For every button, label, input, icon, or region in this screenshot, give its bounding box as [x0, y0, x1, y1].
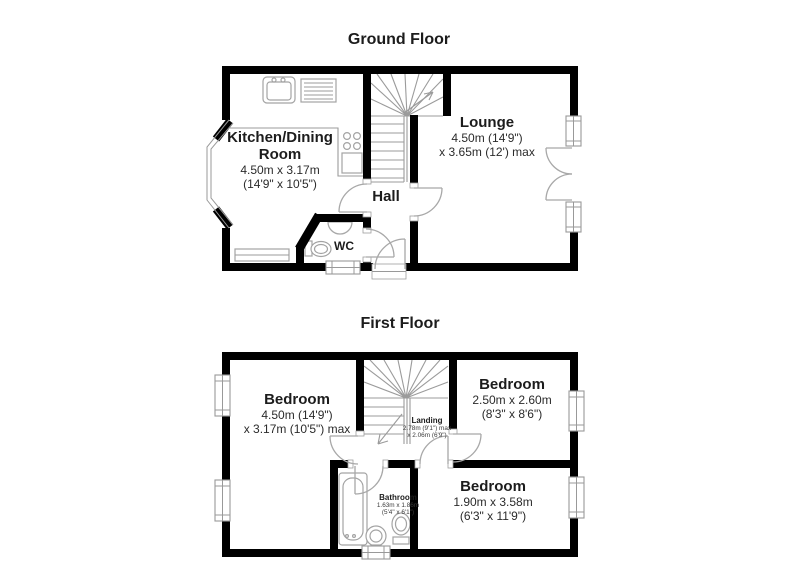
- room-label-bedroom-top-right: Bedroom 2.50m x 2.60m (8'3" x 8'6"): [472, 376, 551, 421]
- radiator-icon: [235, 249, 289, 261]
- bedroom-left-window-top: [215, 375, 230, 416]
- lounge-window-bottom: [566, 202, 581, 232]
- room-label-wc: WC: [334, 239, 354, 253]
- ground-floor-stairs: [371, 74, 443, 182]
- bedroom-top-right-door: [453, 434, 481, 462]
- bedroom-bottom-right-window: [569, 477, 584, 518]
- room-label-kitchen: Kitchen/Dining Room 4.50m x 3.17m (14'9"…: [213, 129, 347, 191]
- room-label-bedroom-bottom-right: Bedroom 1.90m x 3.58m (6'3" x 11'9"): [453, 478, 532, 523]
- lounge-window-top: [566, 116, 581, 146]
- bathroom-window: [362, 546, 390, 559]
- wc-toilet-icon: [305, 241, 331, 257]
- bedroom-top-right-window: [569, 391, 584, 431]
- wc-window: [326, 261, 360, 274]
- bathroom-toilet-icon: [392, 513, 410, 544]
- bedroom-bottom-right-door: [420, 436, 448, 464]
- room-label-hall: Hall: [372, 188, 400, 205]
- bedroom-left-window-bottom: [215, 480, 230, 521]
- first-floor-title: First Floor: [360, 315, 439, 333]
- stairs-down-arrow-icon: [378, 414, 402, 444]
- lounge-door: [414, 188, 442, 216]
- room-label-bathroom: Bathroom 1.63m x 1.86m (5'4" x 6'1"): [377, 493, 419, 516]
- room-label-lounge: Lounge 4.50m (14'9") x 3.65m (12') max: [439, 114, 535, 159]
- ground-floor-title: Ground Floor: [348, 31, 450, 49]
- bathtub-icon: [339, 473, 367, 545]
- front-door: [372, 239, 406, 279]
- room-label-bedroom-left: Bedroom 4.50m (14'9") x 3.17m (10'5") ma…: [244, 391, 351, 436]
- floorplan-page: Ground Floor Kitchen/Dining Room 4.50m x…: [0, 0, 800, 582]
- french-doors: [546, 148, 572, 200]
- room-label-landing: Landing 2.78m (9'1") max x 2.06m (6'9"): [403, 416, 451, 439]
- bedroom-left-door: [330, 436, 358, 464]
